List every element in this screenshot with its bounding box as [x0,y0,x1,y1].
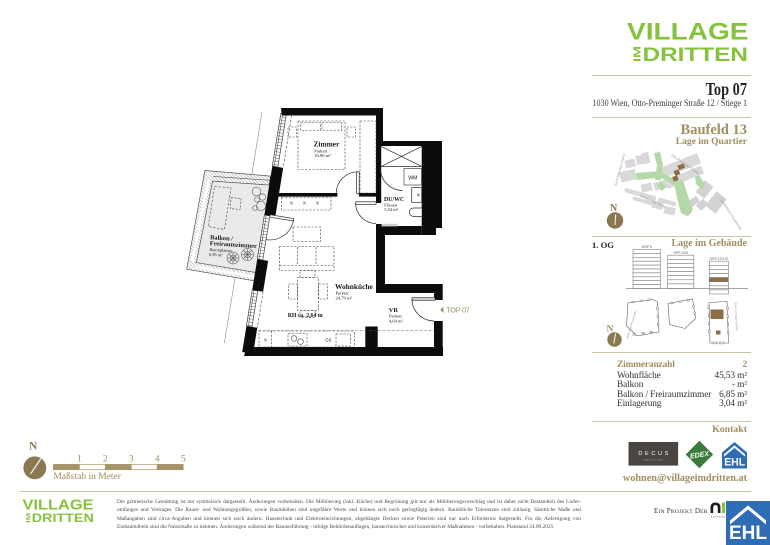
svg-text:Zimmer: Zimmer [314,140,341,149]
svg-text:RH ca. 2,64 m: RH ca. 2,64 m [288,313,323,319]
svg-text:K: K [264,337,267,342]
svg-text:4: 4 [155,454,160,464]
svg-text:1: 1 [77,454,82,464]
svg-text:3: 3 [129,454,134,464]
svg-text:GS: GS [325,337,331,342]
svg-text:2: 2 [103,454,108,464]
svg-text:4,64 m²: 4,64 m² [389,318,404,324]
svg-text:N: N [29,441,38,453]
svg-text:5,54 m²: 5,54 m² [384,207,399,213]
svg-text:10,96 m²: 10,96 m² [314,153,331,159]
svg-text:TOP 07: TOP 07 [446,305,470,314]
svg-text:24,79 m²: 24,79 m² [336,295,353,301]
svg-text:Maßstab in Meter: Maßstab in Meter [53,471,121,482]
svg-text:WM: WM [408,176,417,182]
svg-text:5: 5 [181,454,186,464]
